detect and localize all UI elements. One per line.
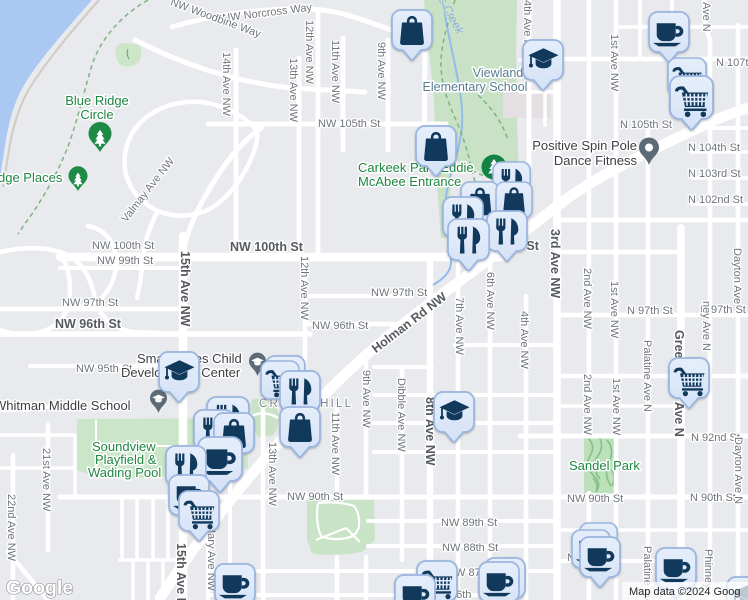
- svg-text:Dayton Ave: Dayton Ave: [731, 248, 743, 304]
- svg-text:1st Ave NW: 1st Ave NW: [608, 34, 620, 92]
- svg-text:NW 90th St: NW 90th St: [287, 491, 343, 503]
- svg-text:Wading Pool: Wading Pool: [88, 465, 161, 480]
- svg-text:1st Ave NW: 1st Ave NW: [608, 281, 620, 339]
- svg-text:Circle: Circle: [80, 107, 113, 122]
- svg-text:12th Ave NW: 12th Ave NW: [298, 256, 310, 321]
- svg-text:13th Ave NW: 13th Ave NW: [287, 58, 299, 123]
- svg-text:NW 100th St: NW 100th St: [230, 240, 304, 254]
- svg-text:NW 88th St: NW 88th St: [442, 542, 498, 554]
- svg-text:22nd Ave NW: 22nd Ave NW: [5, 494, 17, 562]
- svg-text:NW 89th St: NW 89th St: [441, 517, 497, 529]
- svg-text:11th Ave NW: 11th Ave NW: [329, 412, 341, 476]
- svg-text:Dibble Ave NW: Dibble Ave NW: [395, 378, 407, 452]
- svg-text:N 105th St: N 105th St: [620, 119, 672, 131]
- svg-text:Google: Google: [6, 577, 73, 599]
- svg-text:Positive Spin Pole: Positive Spin Pole: [532, 138, 637, 153]
- svg-text:N 104th St: N 104th St: [688, 142, 740, 154]
- svg-text:1st Ave NW: 1st Ave NW: [610, 378, 622, 436]
- svg-text:15th Ave NW: 15th Ave NW: [174, 543, 188, 600]
- svg-text:NW 100th St: NW 100th St: [92, 240, 154, 252]
- svg-text:6th Ave NW: 6th Ave NW: [484, 272, 496, 330]
- svg-text:Viewland: Viewland: [473, 66, 524, 80]
- svg-text:11th Ave NW: 11th Ave NW: [329, 40, 341, 104]
- svg-text:Whitman Middle School: Whitman Middle School: [0, 398, 131, 413]
- svg-text:Dayton Ave N: Dayton Ave N: [732, 437, 744, 504]
- svg-text:15th Ave NW: 15th Ave NW: [178, 251, 192, 327]
- svg-text:Dance Fitness: Dance Fitness: [554, 153, 638, 168]
- svg-text:2nd Ave NW: 2nd Ave NW: [581, 268, 593, 330]
- svg-text:NW 96th St: NW 96th St: [312, 320, 368, 332]
- svg-text:14th Ave NW: 14th Ave NW: [220, 52, 232, 117]
- svg-text:NW 97th St: NW 97th St: [371, 287, 427, 299]
- svg-text:NW 99th St: NW 99th St: [97, 255, 153, 267]
- svg-text:Sandel Park: Sandel Park: [569, 458, 640, 473]
- svg-text:Elementary School: Elementary School: [423, 80, 528, 94]
- svg-text:NW 96th St: NW 96th St: [55, 317, 122, 331]
- svg-text:N 103rd St: N 103rd St: [688, 168, 741, 180]
- svg-text:dge Places: dge Places: [0, 170, 63, 185]
- svg-text:N 107th: N 107th: [716, 57, 748, 69]
- svg-text:3rd Ave NW: 3rd Ave NW: [548, 229, 562, 298]
- svg-text:N 90th St: N 90th St: [690, 492, 736, 504]
- svg-text:NW 90th St: NW 90th St: [567, 493, 623, 505]
- svg-text:NW 105th St: NW 105th St: [318, 118, 380, 130]
- svg-text:21st Ave NW: 21st Ave NW: [40, 448, 52, 512]
- svg-text:McAbee Entrance: McAbee Entrance: [358, 174, 461, 189]
- svg-text:Palatine Ave N: Palatine Ave N: [641, 340, 653, 412]
- svg-text:9th Ave NW: 9th Ave NW: [360, 370, 372, 428]
- svg-text:12th Ave NW: 12th Ave NW: [303, 20, 315, 85]
- svg-text:ney Ave N: ney Ave N: [700, 301, 712, 351]
- svg-text:9th Ave NW: 9th Ave NW: [375, 42, 387, 100]
- svg-text:7th Ave NW: 7th Ave NW: [453, 297, 465, 355]
- svg-text:Map data ©2024 Goog: Map data ©2024 Goog: [629, 586, 740, 598]
- svg-text:Blue Ridge: Blue Ridge: [65, 93, 129, 108]
- svg-text:N 97th St: N 97th St: [627, 305, 673, 317]
- svg-text:2nd Ave NW: 2nd Ave NW: [581, 374, 593, 436]
- svg-text:NW 97th St: NW 97th St: [62, 297, 118, 309]
- svg-text:13th Ave NW: 13th Ave NW: [266, 442, 278, 507]
- svg-text:4th Ave NW: 4th Ave NW: [518, 311, 530, 369]
- svg-text:Ave N: Ave N: [700, 2, 712, 32]
- svg-text:Carkeek Park Eddie: Carkeek Park Eddie: [358, 160, 474, 175]
- svg-text:N 102nd St: N 102nd St: [688, 194, 743, 206]
